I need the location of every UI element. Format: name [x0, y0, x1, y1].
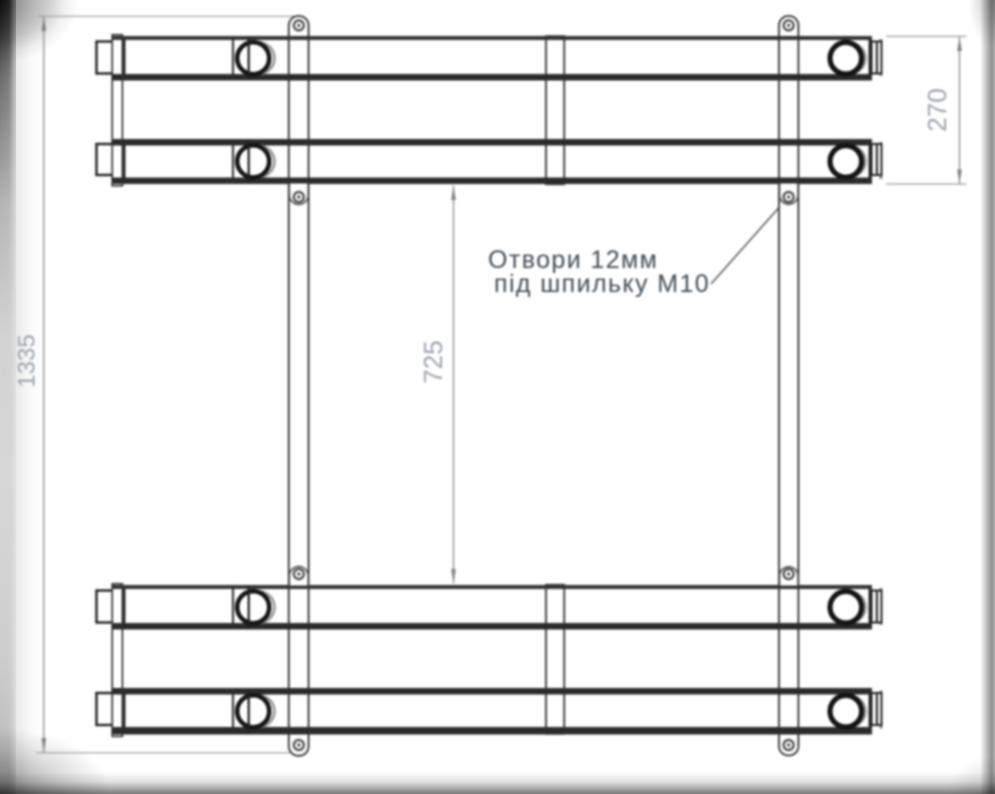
svg-text:725: 725 [418, 340, 448, 383]
svg-text:під шпильку М10: під шпильку М10 [494, 270, 710, 298]
svg-text:1335: 1335 [14, 334, 41, 387]
svg-text:270: 270 [922, 88, 952, 131]
